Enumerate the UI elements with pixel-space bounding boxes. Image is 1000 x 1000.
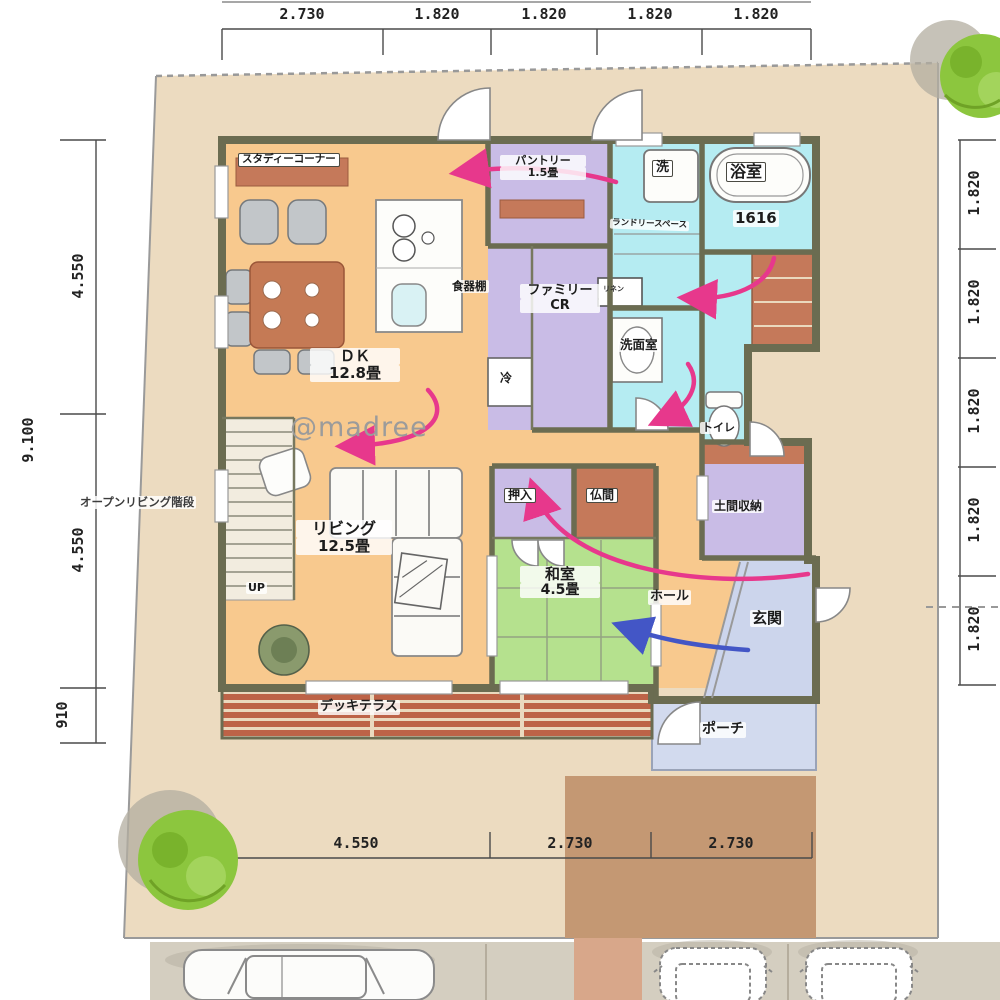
burner-icon xyxy=(393,239,415,261)
room-label-pantry: パントリー 1.5畳 xyxy=(500,155,586,180)
dim-right-3: 1.820 xyxy=(965,371,983,451)
dim-left-1: 4.550 xyxy=(69,236,87,316)
washitsu-floor xyxy=(492,538,656,688)
stairs xyxy=(224,418,294,600)
fixture-label-linen: リネン xyxy=(603,286,624,294)
dim-top-3: 1.820 xyxy=(504,5,584,23)
car-outline-dotted xyxy=(654,948,772,1000)
dim-left-2: 4.550 xyxy=(69,510,87,590)
room-label-living: リビング 12.5畳 xyxy=(296,520,392,555)
dim-left-3: 910 xyxy=(53,675,71,755)
family-closet-floor xyxy=(532,246,610,430)
car-parked xyxy=(184,950,434,1000)
room-label-doma: 土間収納 xyxy=(712,500,764,513)
dim-bottom-2: 2.730 xyxy=(530,834,610,852)
open-stairs-label: オープンリビング階段 xyxy=(78,496,196,509)
room-label-study-corner: スタディーコーナー xyxy=(238,153,340,167)
room-label-hall: ホール xyxy=(648,590,691,605)
burner-icon xyxy=(393,215,415,237)
kitchen-sink xyxy=(392,284,426,326)
dim-top-4: 1.820 xyxy=(610,5,690,23)
floor-plan-page: スタディーコーナー パントリー 1.5畳 洗 浴室 1616 ランドリースペース… xyxy=(0,0,1000,1000)
approach-path xyxy=(574,938,642,1000)
fixture-label-fridge: 冷 xyxy=(500,372,512,385)
driveway xyxy=(565,776,816,938)
room-label-washroom: 洗面室 xyxy=(618,338,660,352)
dim-left-overall: 9.100 xyxy=(19,400,37,480)
pantry-shelf xyxy=(500,200,584,218)
room-label-family-closet: ファミリー CR xyxy=(520,284,600,313)
deck-label: デッキテラス xyxy=(318,700,400,715)
dim-right-5: 1.820 xyxy=(965,589,983,669)
dim-right-2: 1.820 xyxy=(965,262,983,342)
burner-icon xyxy=(422,232,434,244)
dim-right-4: 1.820 xyxy=(965,480,983,560)
side-table xyxy=(395,553,448,609)
room-label-oshiire: 押入 xyxy=(504,488,536,503)
linen-shelves xyxy=(752,254,814,346)
room-label-toilet: トイレ xyxy=(700,422,737,434)
room-label-bath: 浴室 xyxy=(726,162,766,182)
watermark: @madree xyxy=(290,412,428,443)
room-label-butsuma: 仏間 xyxy=(586,488,618,503)
kitchen-counter xyxy=(376,200,462,332)
dim-bottom-1: 4.550 xyxy=(316,834,396,852)
dim-top-1: 2.730 xyxy=(262,5,342,23)
dim-top-2: 1.820 xyxy=(397,5,477,23)
dim-right-1: 1.820 xyxy=(965,153,983,233)
deck-floor xyxy=(222,688,652,738)
fixture-label-washer: 洗 xyxy=(652,160,673,177)
room-label-genkan: 玄関 xyxy=(750,610,784,627)
car-outline-dotted xyxy=(800,948,918,1000)
dining-table xyxy=(250,262,344,348)
toilet-fixture xyxy=(706,392,742,446)
porch-label: ポーチ xyxy=(700,722,746,738)
dim-bottom-3: 2.730 xyxy=(691,834,771,852)
room-label-washitsu: 和室 4.5畳 xyxy=(520,566,600,598)
bath-size-label: 1616 xyxy=(733,210,779,227)
dim-top-5: 1.820 xyxy=(716,5,796,23)
fixture-label-dish-shelf: 食器棚 xyxy=(450,280,489,293)
room-label-dk: ＤＫ 12.8畳 xyxy=(310,348,400,382)
plant xyxy=(259,625,309,675)
stairs-up-label: UP xyxy=(246,582,267,594)
